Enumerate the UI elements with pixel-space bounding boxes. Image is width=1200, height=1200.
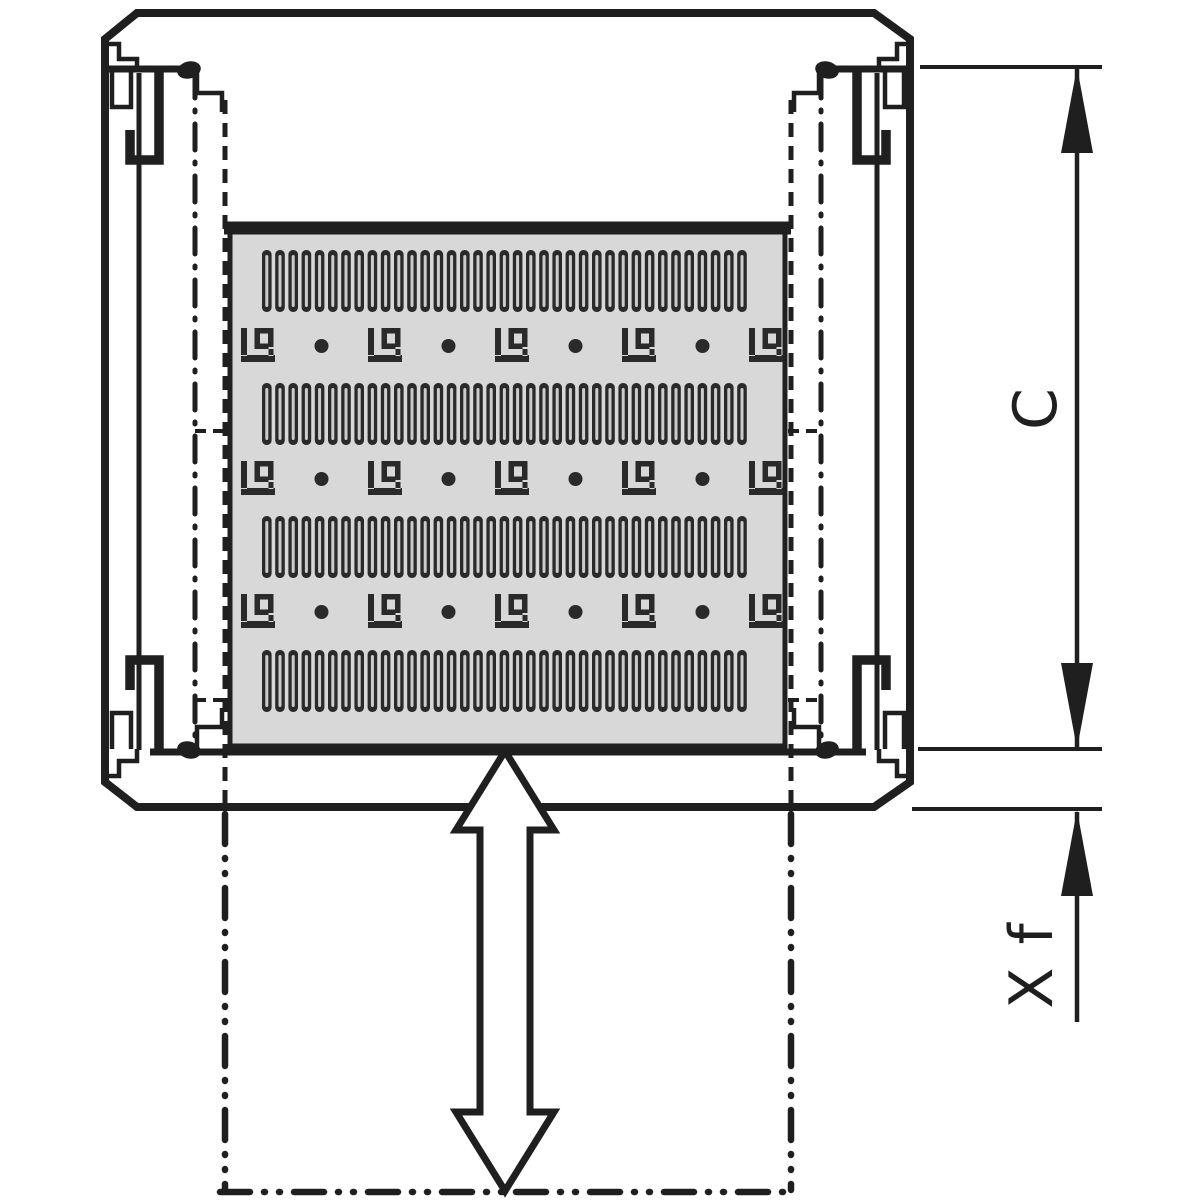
vent-slot-slit bbox=[661, 655, 664, 707]
vent-slot-slit bbox=[292, 655, 295, 707]
vent-slot-slit bbox=[345, 521, 348, 573]
anchor-cutout bbox=[368, 594, 402, 628]
vent-slot-slit bbox=[595, 521, 598, 573]
vent-slot-slit bbox=[503, 255, 506, 307]
vent-slot-slit bbox=[477, 255, 480, 307]
vent-slot-slit bbox=[450, 655, 453, 707]
vent-slot-slit bbox=[279, 521, 282, 573]
vent-slot-slit bbox=[543, 255, 546, 307]
vent-slot-slit bbox=[305, 521, 308, 573]
vent-slot-slit bbox=[569, 521, 572, 573]
anchor-cutout bbox=[495, 594, 529, 628]
vent-slot-slit bbox=[516, 255, 519, 307]
vent-slot-slit bbox=[424, 655, 427, 707]
vent-slot-slit bbox=[543, 655, 546, 707]
vent-slot-slit bbox=[450, 521, 453, 573]
cabinet-shelf-diagram: C X f bbox=[0, 0, 1200, 1200]
vent-slot-slit bbox=[661, 521, 664, 573]
round-hole bbox=[315, 339, 329, 353]
vent-slot-slit bbox=[265, 521, 268, 573]
vent-slot-slit bbox=[292, 521, 295, 573]
corner-bracket-bottom-right bbox=[794, 660, 910, 776]
vent-slot-slit bbox=[661, 388, 664, 440]
vent-slot-slit bbox=[688, 255, 691, 307]
vent-slot-slit bbox=[714, 255, 717, 307]
corner-bracket-top-left bbox=[106, 44, 222, 160]
vent-slot-slit bbox=[688, 521, 691, 573]
vent-slot-slit bbox=[595, 655, 598, 707]
vent-slot-slit bbox=[675, 655, 678, 707]
vent-slot-slit bbox=[635, 655, 638, 707]
vent-slot-slit bbox=[318, 655, 321, 707]
vent-slot-slit bbox=[279, 655, 282, 707]
vent-slot-slit bbox=[477, 655, 480, 707]
vent-slot-slit bbox=[727, 255, 730, 307]
vent-slot-slit bbox=[450, 255, 453, 307]
vent-slot-slit bbox=[741, 255, 744, 307]
vent-slot-slit bbox=[714, 521, 717, 573]
round-hole bbox=[696, 605, 710, 619]
vent-slot-slit bbox=[305, 655, 308, 707]
vent-slot-slit bbox=[305, 388, 308, 440]
vent-slot-slit bbox=[727, 521, 730, 573]
arrowhead-C-bottom bbox=[1061, 663, 1093, 749]
vent-slot-slit bbox=[648, 521, 651, 573]
vent-slot-slit bbox=[701, 255, 704, 307]
vent-slot-slit bbox=[556, 255, 559, 307]
vent-slot-slit bbox=[675, 388, 678, 440]
anchor-cutout bbox=[241, 461, 275, 495]
vent-slot-slit bbox=[569, 388, 572, 440]
vent-slot-slit bbox=[265, 388, 268, 440]
vent-slot-slit bbox=[490, 388, 493, 440]
anchor-cutout bbox=[368, 461, 402, 495]
vent-slot-slit bbox=[741, 388, 744, 440]
dimension-label-Xf: X f bbox=[997, 921, 1067, 1008]
vent-slot-slit bbox=[371, 388, 374, 440]
anchor-cutout bbox=[749, 594, 783, 628]
vent-slot-slit bbox=[463, 255, 466, 307]
vent-slot-slit bbox=[635, 388, 638, 440]
round-hole bbox=[696, 472, 710, 486]
vent-slot-slit bbox=[358, 521, 361, 573]
vent-slot-slit bbox=[292, 388, 295, 440]
vent-slot-slit bbox=[411, 521, 414, 573]
vent-slot-slit bbox=[556, 655, 559, 707]
vent-slot-slit bbox=[503, 388, 506, 440]
vent-slot-slit bbox=[635, 255, 638, 307]
vent-slot-slit bbox=[516, 388, 519, 440]
vent-slot-slit bbox=[714, 655, 717, 707]
round-hole bbox=[442, 605, 456, 619]
vent-slot-slit bbox=[675, 521, 678, 573]
vent-slot-slit bbox=[648, 655, 651, 707]
vent-slot-slit bbox=[318, 255, 321, 307]
anchor-cutout bbox=[495, 461, 529, 495]
vent-slot-slit bbox=[582, 388, 585, 440]
vent-slot-slit bbox=[609, 388, 612, 440]
vent-slot-slit bbox=[371, 521, 374, 573]
anchor-cutout bbox=[622, 328, 656, 362]
vent-slot-slit bbox=[345, 388, 348, 440]
vent-slot-slit bbox=[701, 388, 704, 440]
vent-slot-slit bbox=[543, 388, 546, 440]
vent-slot-slit bbox=[411, 388, 414, 440]
vent-slot-slit bbox=[331, 255, 334, 307]
vent-slot-slit bbox=[635, 521, 638, 573]
anchor-cutout bbox=[749, 328, 783, 362]
vent-slot-slit bbox=[463, 521, 466, 573]
anchor-cutout bbox=[241, 594, 275, 628]
vent-slot-slit bbox=[609, 521, 612, 573]
vent-slot-slit bbox=[397, 255, 400, 307]
drawing-stage: C X f bbox=[0, 0, 1200, 1200]
vent-slot-slit bbox=[345, 655, 348, 707]
anchor-cutout bbox=[622, 594, 656, 628]
vent-slot-slit bbox=[358, 655, 361, 707]
vent-slot-slit bbox=[371, 655, 374, 707]
vent-slot-slit bbox=[437, 521, 440, 573]
vent-slot-slit bbox=[609, 255, 612, 307]
vent-slot-slit bbox=[675, 255, 678, 307]
sliding-shelf-panel bbox=[224, 228, 791, 746]
vent-slot-slit bbox=[358, 388, 361, 440]
vent-slot-slit bbox=[331, 655, 334, 707]
vent-slot-slit bbox=[569, 255, 572, 307]
vent-slot-slit bbox=[397, 388, 400, 440]
vent-slot-slit bbox=[529, 255, 532, 307]
round-hole bbox=[315, 472, 329, 486]
vent-slot-slit bbox=[688, 388, 691, 440]
vent-slot-slit bbox=[331, 388, 334, 440]
vent-slot-slit bbox=[265, 655, 268, 707]
vent-slot-slit bbox=[595, 388, 598, 440]
vent-slot-slit bbox=[292, 255, 295, 307]
vent-slot-slit bbox=[701, 655, 704, 707]
vent-slot-slit bbox=[741, 655, 744, 707]
vent-slot-slit bbox=[424, 521, 427, 573]
vent-slot-slit bbox=[727, 655, 730, 707]
vent-slot-slit bbox=[622, 388, 625, 440]
vent-slot-slit bbox=[622, 655, 625, 707]
vent-slot-slit bbox=[411, 655, 414, 707]
vent-slot-slit bbox=[648, 255, 651, 307]
anchor-cutout bbox=[749, 461, 783, 495]
vent-slot-slit bbox=[345, 255, 348, 307]
vent-slot-slit bbox=[397, 655, 400, 707]
vent-slot-slit bbox=[503, 655, 506, 707]
vent-slot-slit bbox=[582, 521, 585, 573]
vent-slot-slit bbox=[503, 521, 506, 573]
vent-slot-slit bbox=[622, 521, 625, 573]
vent-slot-slit bbox=[384, 255, 387, 307]
vent-slot-slit bbox=[490, 655, 493, 707]
vent-slot-slit bbox=[529, 388, 532, 440]
vent-slot-slit bbox=[661, 255, 664, 307]
vent-slot-slit bbox=[437, 388, 440, 440]
anchor-cutout bbox=[368, 328, 402, 362]
vent-slot-slit bbox=[318, 521, 321, 573]
vent-slot-slit bbox=[437, 255, 440, 307]
anchor-cutout bbox=[241, 328, 275, 362]
vent-slot-slit bbox=[569, 655, 572, 707]
vent-slot-slit bbox=[450, 388, 453, 440]
vent-slot-slit bbox=[714, 388, 717, 440]
vent-slot-slit bbox=[529, 521, 532, 573]
vent-slot-slit bbox=[543, 521, 546, 573]
vent-slot-slit bbox=[582, 655, 585, 707]
anchor-cutout bbox=[622, 461, 656, 495]
vent-slot-slit bbox=[727, 388, 730, 440]
anchor-cutout bbox=[495, 328, 529, 362]
vent-slot-slit bbox=[477, 388, 480, 440]
slide-travel-arrow bbox=[456, 751, 554, 1191]
vent-slot-slit bbox=[688, 655, 691, 707]
vent-slot-slit bbox=[279, 255, 282, 307]
vent-slot-slit bbox=[463, 655, 466, 707]
vent-slot-slit bbox=[384, 655, 387, 707]
vent-slot-slit bbox=[595, 255, 598, 307]
vent-slot-slit bbox=[371, 255, 374, 307]
arrowhead-C-top bbox=[1061, 67, 1093, 153]
vent-slot-slit bbox=[437, 655, 440, 707]
round-hole bbox=[315, 605, 329, 619]
vent-slot-slit bbox=[411, 255, 414, 307]
vent-slot-slit bbox=[490, 521, 493, 573]
round-hole bbox=[696, 339, 710, 353]
vent-slot-slit bbox=[477, 521, 480, 573]
dimension-label-C: C bbox=[1001, 386, 1071, 430]
vent-slot-slit bbox=[384, 388, 387, 440]
vent-slot-slit bbox=[424, 388, 427, 440]
vent-slot-slit bbox=[490, 255, 493, 307]
vent-slot-slit bbox=[397, 521, 400, 573]
vent-slot-slit bbox=[305, 255, 308, 307]
round-hole bbox=[569, 339, 583, 353]
round-hole bbox=[442, 339, 456, 353]
vent-slot-slit bbox=[463, 388, 466, 440]
vent-slot-slit bbox=[318, 388, 321, 440]
vent-slot-slit bbox=[529, 655, 532, 707]
vent-slot-slit bbox=[622, 255, 625, 307]
vent-slot-slit bbox=[279, 388, 282, 440]
vent-slot-slit bbox=[331, 521, 334, 573]
vent-slot-slit bbox=[516, 521, 519, 573]
dimensions: C X f bbox=[912, 67, 1102, 1022]
vent-slot-slit bbox=[701, 521, 704, 573]
vent-slot-slit bbox=[556, 521, 559, 573]
arrowhead-Xf bbox=[1061, 810, 1093, 896]
vent-slot-slit bbox=[384, 521, 387, 573]
round-hole bbox=[569, 605, 583, 619]
vent-slot-slit bbox=[582, 255, 585, 307]
round-hole bbox=[442, 472, 456, 486]
vent-slot-slit bbox=[424, 255, 427, 307]
vent-slot-slit bbox=[741, 521, 744, 573]
vent-slot-slit bbox=[265, 255, 268, 307]
corner-bracket-top-right bbox=[794, 44, 910, 160]
vent-slot-slit bbox=[609, 655, 612, 707]
vent-slot-slit bbox=[516, 655, 519, 707]
vent-slot-slit bbox=[648, 388, 651, 440]
round-hole bbox=[569, 472, 583, 486]
vent-slot-slit bbox=[358, 255, 361, 307]
corner-bracket-bottom-left bbox=[106, 660, 222, 776]
vent-slot-slit bbox=[556, 388, 559, 440]
